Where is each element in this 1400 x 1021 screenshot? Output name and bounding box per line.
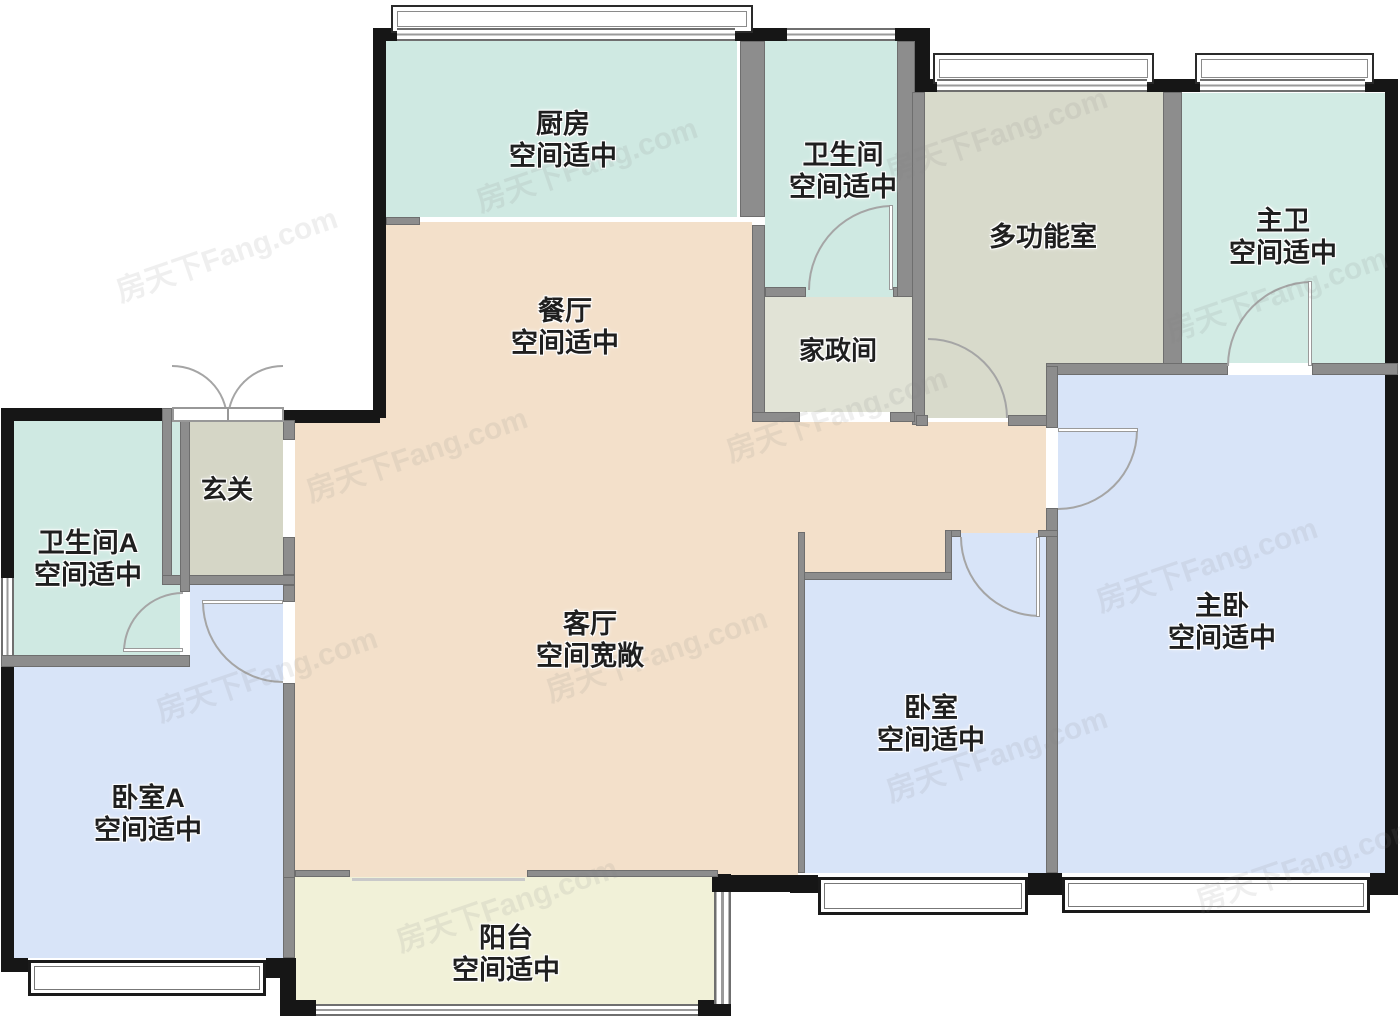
wall-segment [1385,79,1398,893]
room-name: 卧室 [904,693,958,723]
wall-segment [1028,873,1062,895]
label-multi-room: 多功能室 [989,222,1097,254]
door-leaf [889,205,893,290]
wall-segment [1147,79,1200,92]
interior-wall [1312,363,1398,375]
sliding-door-track [352,878,525,881]
wall-segment [1,408,168,421]
room-name: 玄关 [201,475,253,505]
room-note: 空间适中 [509,141,617,173]
label-bedroom: 卧室 空间适中 [877,693,985,757]
interior-wall [283,585,295,602]
room-note: 空间宽敞 [536,641,644,673]
label-master-bath: 主卫 空间适中 [1229,206,1337,270]
window [937,79,1147,92]
interior-wall [1038,530,1058,537]
room-name: 卧室A [111,783,185,813]
wall-segment [1370,873,1398,895]
interior-wall [283,420,295,440]
label-balcony: 阳台 空间适中 [452,923,560,987]
interior-wall [527,870,718,877]
room-name: 餐厅 [538,296,592,326]
interior-wall [180,420,190,592]
interior-wall [798,572,952,580]
window [818,877,1028,915]
room-name: 阳台 [479,923,533,953]
room-name: 卫生间 [803,140,884,170]
window [28,960,266,996]
room-hallway-area [752,422,1046,537]
room-name: 家政间 [799,336,877,366]
interior-wall [916,415,928,426]
interior-wall [752,225,765,417]
door-leaf [202,600,283,604]
balcony-window [316,1004,698,1016]
interior-wall [162,408,172,585]
interior-wall [1046,508,1058,873]
label-kitchen: 厨房 空间适中 [509,109,617,173]
label-bathroom: 卫生间 空间适中 [789,140,897,204]
wall-segment [1,408,14,972]
interior-wall [295,870,350,877]
window [1200,79,1365,92]
window [1,578,14,655]
room-name: 厨房 [536,109,590,139]
entry-door-panel [227,407,284,422]
room-hallway-notch [805,532,945,572]
wall-segment [266,958,295,978]
window [787,28,895,41]
interior-wall [752,412,800,422]
door-leaf [123,648,183,652]
door-leaf [1036,537,1040,617]
wall-segment [718,875,812,892]
window [397,28,735,41]
room-note: 空间适中 [511,328,619,360]
interior-wall [283,537,295,575]
room-name: 多功能室 [989,222,1097,252]
interior-wall [283,877,295,958]
door-leaf [1308,281,1312,366]
room-note: 空间适中 [34,560,142,592]
room-name: 客厅 [563,609,617,639]
label-dining: 餐厅 空间适中 [511,296,619,360]
interior-wall [798,532,805,873]
floorplan: 房天下Fang.com 房天下Fang.com 房天下Fang.com 房天下F… [0,0,1400,1021]
interior-wall [740,41,765,217]
balcony-window [714,892,731,1004]
watermark: 房天下Fang.com [109,193,342,310]
room-note: 空间适中 [1229,238,1337,270]
label-living: 客厅 空间宽敞 [536,609,644,673]
room-name: 主卫 [1256,206,1310,236]
label-housekeeping: 家政间 [799,336,877,367]
label-bathroom-a: 卫生间A 空间适中 [34,528,142,592]
wall-segment [283,410,380,423]
room-note: 空间适中 [789,172,897,204]
window [1062,877,1370,913]
room-note: 空间适中 [877,725,985,757]
room-note: 空间适中 [94,815,202,847]
door-leaf [1058,428,1138,432]
label-bedroom-a: 卧室A 空间适中 [94,783,202,847]
room-note: 空间适中 [452,955,560,987]
interior-wall [912,92,925,425]
entry-door-panel [172,407,229,422]
interior-wall [386,217,420,225]
interior-wall [890,412,915,422]
interior-wall [1046,363,1228,375]
interior-wall [1046,366,1058,428]
label-master-bedroom: 主卧 空间适中 [1168,591,1276,655]
interior-wall [765,287,806,297]
interior-wall [1163,92,1182,366]
wall-segment [373,28,386,418]
label-foyer: 玄关 [201,475,253,506]
room-note: 空间适中 [1168,623,1276,655]
room-name: 卫生间A [38,528,139,558]
room-name: 主卧 [1195,591,1249,621]
interior-wall [1,655,190,667]
